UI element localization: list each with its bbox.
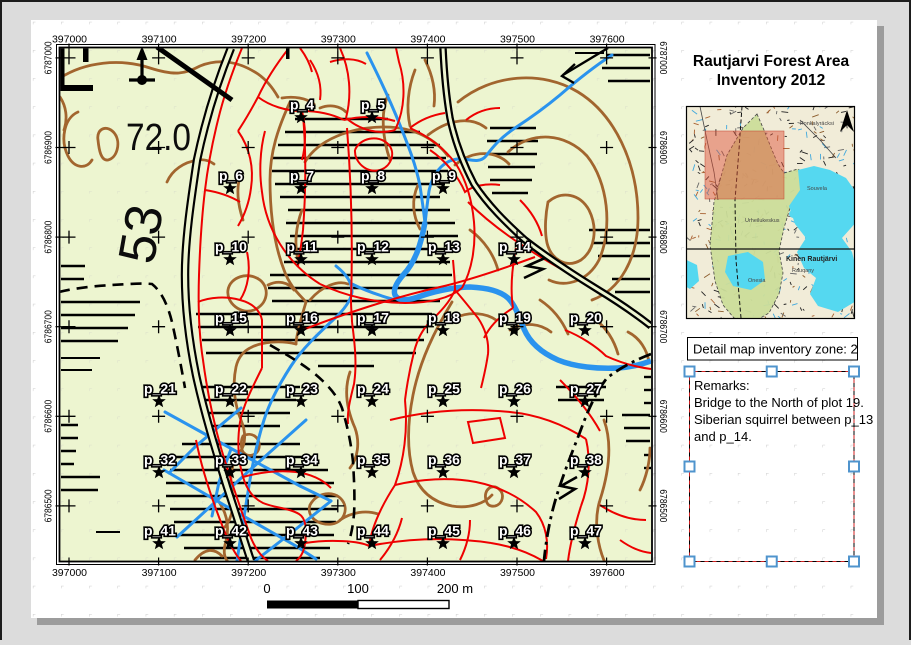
svg-text:Remarks:: Remarks: [694,378,750,393]
svg-text:Souvela: Souvela [807,186,828,192]
svg-text:6786700: 6786700 [43,310,55,343]
svg-text:397000: 397000 [52,34,87,46]
svg-text:p_38: p_38 [570,452,602,468]
svg-text:p_26: p_26 [499,381,531,397]
svg-text:p_41: p_41 [144,523,176,539]
svg-text:p_22: p_22 [215,381,247,397]
svg-text:p_43: p_43 [286,523,318,539]
svg-text:p_47: p_47 [570,523,602,539]
svg-text:397100: 397100 [142,567,177,579]
svg-text:p_10: p_10 [215,239,247,255]
svg-text:p_45: p_45 [428,523,460,539]
svg-text:53: 53 [108,201,175,268]
svg-text:6786600: 6786600 [657,400,669,433]
svg-text:397000: 397000 [52,567,87,579]
svg-text:397200: 397200 [231,567,266,579]
svg-text:p_5: p_5 [361,97,385,113]
svg-text:p_36: p_36 [428,452,460,468]
svg-text:6787000: 6787000 [657,41,669,74]
svg-text:6786900: 6786900 [657,131,669,164]
svg-text:6786500: 6786500 [657,489,669,522]
svg-text:Detail map inventory zone: 2: Detail map inventory zone: 2 [693,342,858,357]
svg-text:p_17: p_17 [357,310,389,326]
svg-text:p_13: p_13 [428,239,460,255]
svg-text:397100: 397100 [142,34,177,46]
svg-text:Ponkalyräcksi: Ponkalyräcksi [800,121,834,127]
svg-text:Rauqany: Rauqany [792,268,814,274]
svg-text:Rautjarvi Forest Area: Rautjarvi Forest Area [693,53,850,70]
svg-text:p_32: p_32 [144,452,176,468]
svg-text:397300: 397300 [321,567,356,579]
svg-text:p_4: p_4 [290,97,314,113]
svg-text:Onesia: Onesia [748,278,766,284]
svg-text:100: 100 [347,581,369,596]
svg-text:6786500: 6786500 [43,489,55,522]
svg-text:6786800: 6786800 [43,220,55,253]
svg-text:397600: 397600 [590,567,625,579]
svg-text:Kinen Rautjärvi: Kinen Rautjärvi [786,256,837,263]
svg-text:397400: 397400 [410,34,445,46]
svg-text:p_7: p_7 [290,168,314,184]
svg-text:p_46: p_46 [499,523,531,539]
svg-text:p_11: p_11 [286,239,317,255]
svg-text:p_24: p_24 [357,381,389,397]
svg-text:200 m: 200 m [437,581,473,596]
svg-text:p_6: p_6 [219,168,243,184]
svg-text:Siberian squirrel between p_13: Siberian squirrel between p_13 [694,412,873,427]
svg-text:Inventory 2012: Inventory 2012 [717,72,826,89]
svg-text:p_16: p_16 [286,310,318,326]
svg-text:6786800: 6786800 [657,221,669,254]
svg-text:p_9: p_9 [432,168,456,184]
svg-text:p_25: p_25 [428,381,460,397]
svg-text:p_14: p_14 [499,239,531,255]
svg-text:p_44: p_44 [357,523,389,539]
svg-text:p_18: p_18 [428,310,460,326]
svg-text:p_15: p_15 [215,310,247,326]
svg-text:p_12: p_12 [357,239,389,255]
svg-text:6786700: 6786700 [657,310,669,343]
svg-text:p_37: p_37 [499,452,531,468]
svg-text:Bridge to the North of plot 19: Bridge to the North of plot 19. [694,395,864,410]
svg-text:397500: 397500 [500,34,535,46]
svg-text:397600: 397600 [590,34,625,46]
svg-text:p_20: p_20 [570,310,602,326]
svg-text:6786900: 6786900 [43,131,55,164]
svg-text:397300: 397300 [321,34,356,46]
svg-text:6787000: 6787000 [43,41,55,74]
svg-text:p_21: p_21 [144,381,176,397]
svg-text:p_8: p_8 [361,168,385,184]
svg-text:p_23: p_23 [286,381,318,397]
svg-text:p_35: p_35 [357,452,389,468]
svg-text:Urheilukeskus: Urheilukeskus [745,218,780,224]
svg-text:6786600: 6786600 [43,400,55,433]
svg-text:p_19: p_19 [499,310,531,326]
svg-text:and p_14.: and p_14. [694,429,752,444]
svg-text:397500: 397500 [500,567,535,579]
svg-text:p_42: p_42 [215,523,247,539]
svg-text:p_27: p_27 [570,381,602,397]
svg-text:397400: 397400 [410,567,445,579]
svg-text:p_33: p_33 [215,452,247,468]
svg-text:397200: 397200 [231,34,266,46]
svg-text:0: 0 [263,581,270,596]
svg-text:p_34: p_34 [286,452,318,468]
